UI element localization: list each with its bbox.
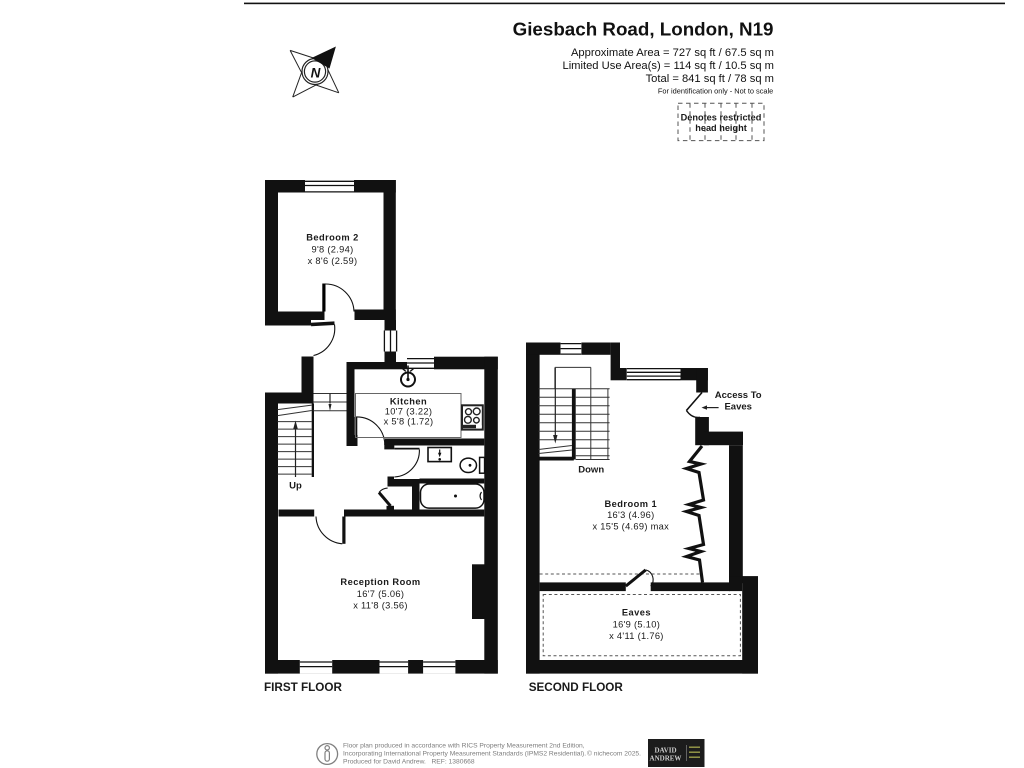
- svg-text:Giesbach Road, London, N19: Giesbach Road, London, N19: [513, 19, 774, 40]
- svg-text:16'7 (5.06): 16'7 (5.06): [357, 589, 404, 599]
- svg-text:16'9 (5.10): 16'9 (5.10): [613, 620, 660, 630]
- svg-text:FIRST FLOOR: FIRST FLOOR: [264, 681, 342, 694]
- svg-text:10'7 (3.22): 10'7 (3.22): [385, 407, 432, 417]
- svg-text:Bedroom 1: Bedroom 1: [604, 499, 657, 509]
- svg-text:9'8 (2.94): 9'8 (2.94): [312, 244, 354, 254]
- svg-text:Denotes restricted: Denotes restricted: [681, 113, 762, 123]
- svg-text:© nichecom 2025.: © nichecom 2025.: [587, 750, 641, 758]
- svg-text:Produced for David Andrew. R: Produced for David Andrew. REF: 1380668: [343, 759, 475, 766]
- svg-text:x 11'8 (3.56): x 11'8 (3.56): [353, 601, 408, 611]
- svg-text:Access To: Access To: [715, 390, 762, 401]
- svg-text:DAVID: DAVID: [654, 747, 676, 755]
- svg-text:Kitchen: Kitchen: [390, 396, 427, 406]
- svg-text:Down: Down: [578, 464, 604, 475]
- svg-text:For identification only - Not: For identification only - Not to scale: [658, 87, 773, 96]
- svg-text:x 8'6 (2.59): x 8'6 (2.59): [308, 256, 358, 266]
- svg-text:Eaves: Eaves: [622, 608, 651, 618]
- svg-text:Reception Room: Reception Room: [340, 577, 420, 587]
- svg-text:Eaves: Eaves: [724, 402, 751, 413]
- svg-text:Total = 841 sq ft / 78 sq m: Total = 841 sq ft / 78 sq m: [646, 73, 774, 85]
- svg-text:Up: Up: [289, 480, 302, 491]
- svg-text:Floor plan produced in accorda: Floor plan produced in accordance with R…: [343, 743, 585, 750]
- svg-text:x 15'5 (4.69) max: x 15'5 (4.69) max: [592, 521, 669, 531]
- svg-text:x 4'11 (1.76): x 4'11 (1.76): [609, 631, 664, 641]
- svg-text:16'3 (4.96): 16'3 (4.96): [607, 510, 654, 520]
- svg-text:Incorporating International Pr: Incorporating International Property Mea…: [343, 751, 586, 758]
- svg-text:Limited Use Area(s) = 114 sq f: Limited Use Area(s) = 114 sq ft / 10.5 s…: [562, 60, 774, 72]
- svg-text:x 5'8 (1.72): x 5'8 (1.72): [384, 417, 434, 427]
- svg-text:head height: head height: [695, 123, 747, 133]
- svg-text:ANDREW: ANDREW: [650, 755, 682, 763]
- svg-text:Bedroom 2: Bedroom 2: [306, 233, 359, 243]
- svg-text:N: N: [311, 66, 321, 81]
- svg-text:Approximate Area = 727 sq ft /: Approximate Area = 727 sq ft / 67.5 sq m: [571, 47, 774, 59]
- svg-text:SECOND FLOOR: SECOND FLOOR: [529, 681, 624, 694]
